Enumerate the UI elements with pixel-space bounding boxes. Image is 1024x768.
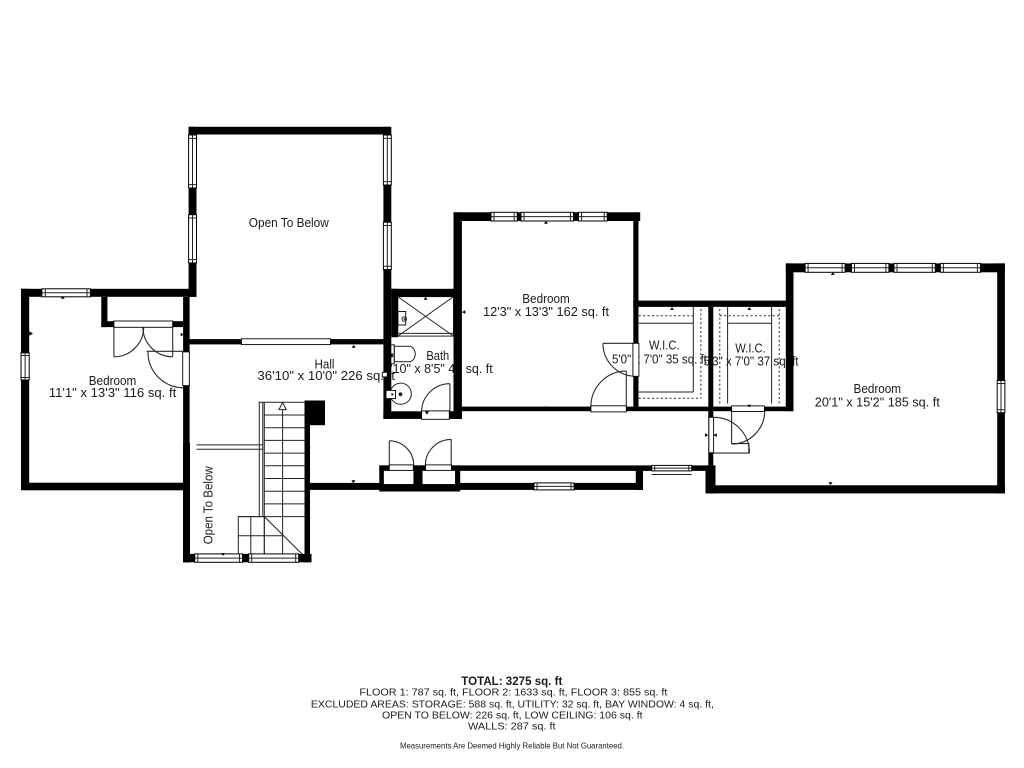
svg-text:12'3" x 13'3" 162 sq. ft: 12'3" x 13'3" 162 sq. ft bbox=[483, 304, 609, 319]
svg-text:11'1" x 13'3" 116 sq. ft: 11'1" x 13'3" 116 sq. ft bbox=[49, 385, 177, 400]
svg-text:20'1" x 15'2" 185 sq. ft: 20'1" x 15'2" 185 sq. ft bbox=[815, 394, 940, 409]
svg-text:5'10" x 8'5" 49 sq. ft: 5'10" x 8'5" 49 sq. ft bbox=[383, 361, 493, 376]
svg-text:Measurements Are Deemed Highly: Measurements Are Deemed Highly Reliable … bbox=[400, 741, 624, 751]
svg-text:5'3" x 7'0" 37 sq. ft: 5'3" x 7'0" 37 sq. ft bbox=[704, 353, 799, 368]
svg-text:W.I.C.: W.I.C. bbox=[649, 338, 680, 353]
svg-text:36'10" x 10'0" 226 sq. ft: 36'10" x 10'0" 226 sq. ft bbox=[257, 368, 395, 383]
svg-text:Open To Below: Open To Below bbox=[201, 466, 216, 545]
svg-text:Open To Below: Open To Below bbox=[249, 215, 330, 230]
svg-text:WALLS: 287 sq. ft: WALLS: 287 sq. ft bbox=[468, 721, 556, 733]
svg-text:FLOOR 1: 787 sq. ft, FLOOR 2:: FLOOR 1: 787 sq. ft, FLOOR 2: 1633 sq. f… bbox=[359, 687, 667, 699]
